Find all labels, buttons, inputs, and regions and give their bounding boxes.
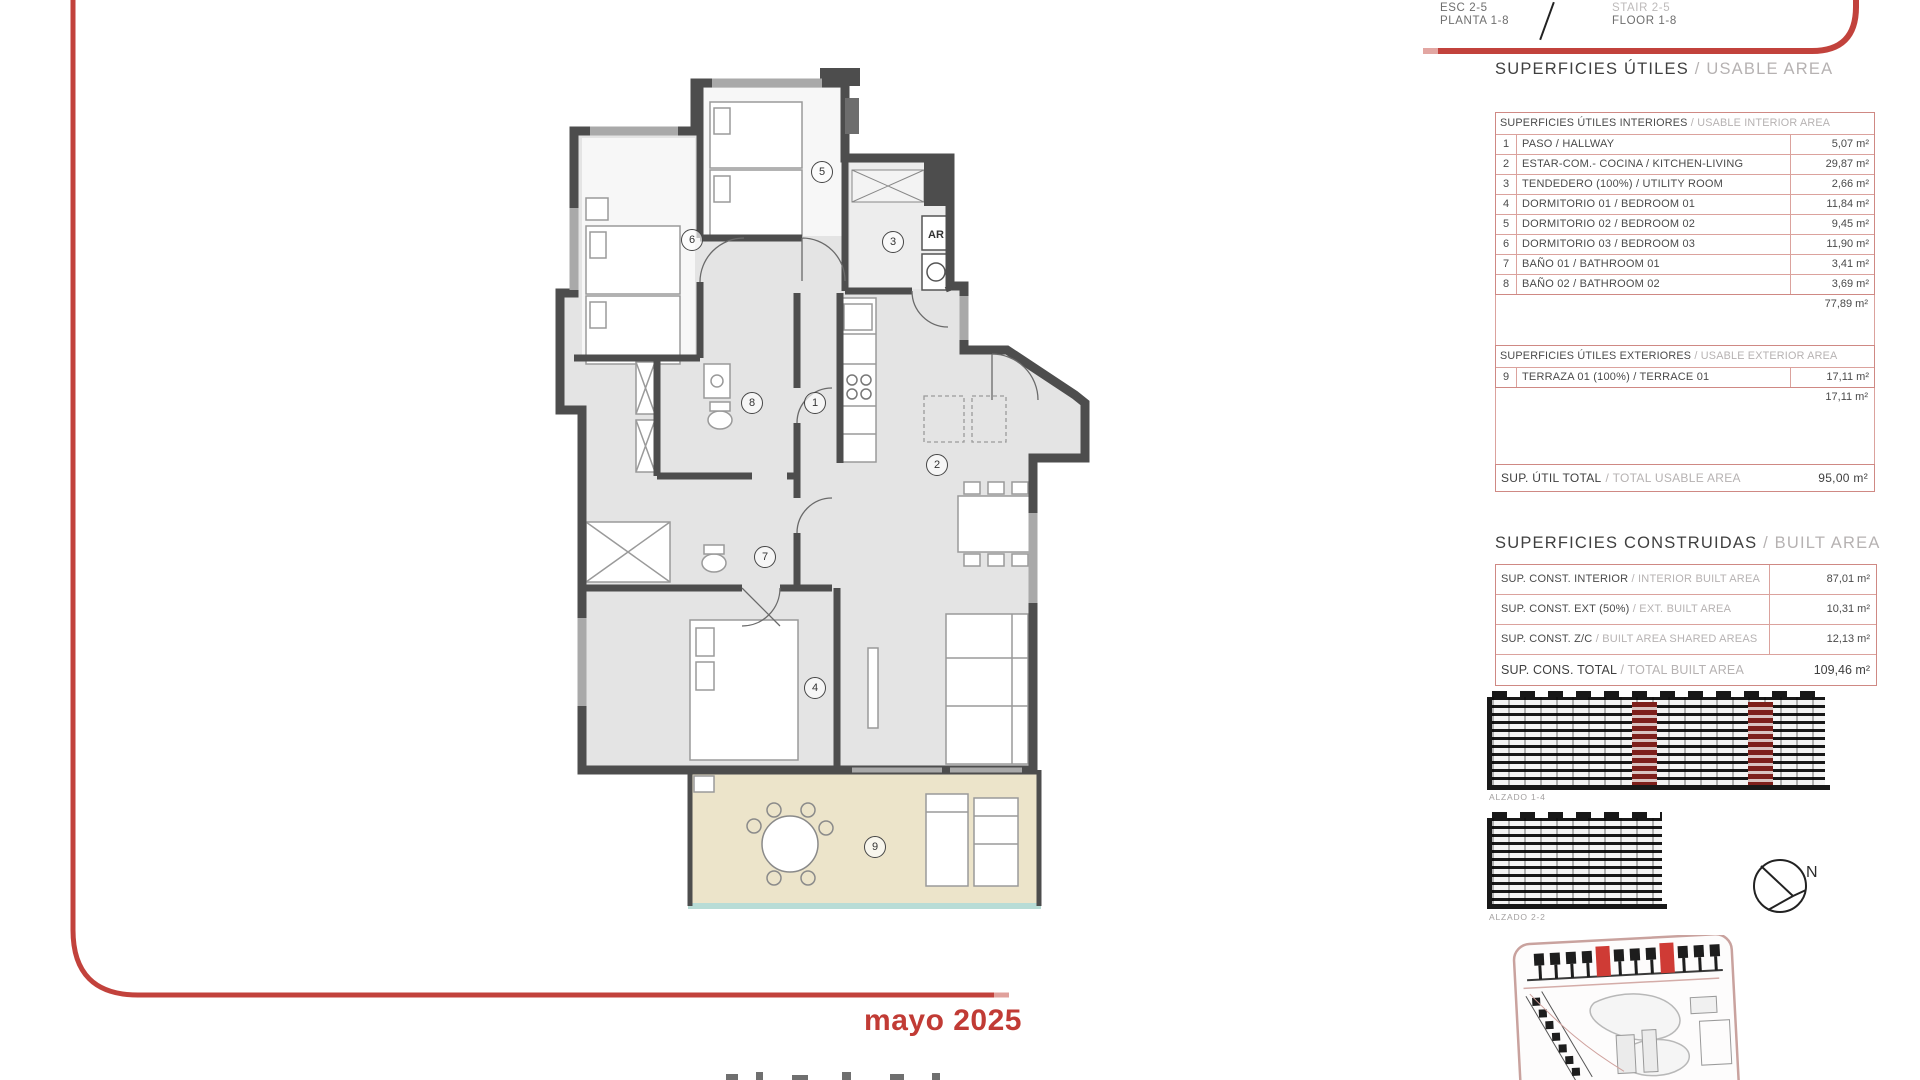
row-number: 6 — [1496, 235, 1517, 254]
built-row-label-es: SUP. CONST. Z/C — [1501, 633, 1592, 645]
interior-table-header: SUPERFICIES ÚTILES INTERIORES / USABLE I… — [1496, 113, 1874, 134]
built-row: SUP. CONST. Z/C / BUILT AREA SHARED AREA… — [1496, 624, 1876, 654]
row-value: 29,87 m² — [1790, 155, 1874, 174]
table-row: 7 BAÑO 01 / BATHROOM 01 3,41 m² — [1496, 254, 1874, 274]
usable-total-label-en: / TOTAL USABLE AREA — [1606, 471, 1741, 485]
built-row-value: 10,31 m² — [1769, 595, 1876, 624]
stair-label-en: STAIR 2-5 — [1612, 2, 1677, 15]
interior-subtotal-value: 77,89 m² — [1825, 298, 1868, 310]
row-value: 11,90 m² — [1790, 235, 1874, 254]
built-row-label-es: SUP. CONST. EXT (50%) — [1501, 603, 1630, 615]
elevation-2-drawing — [1487, 818, 1662, 904]
date-stamp: mayo 2025 — [860, 1004, 1022, 1038]
elevation-1-highlight — [1632, 702, 1657, 785]
interior-subtotal: 77,89 m² — [1495, 295, 1875, 345]
site-plan — [1502, 935, 1752, 1080]
interior-header-en: / USABLE INTERIOR AREA — [1691, 117, 1830, 129]
elevation-1-label: ALZADO 1-4 — [1489, 792, 1546, 802]
row-number: 5 — [1496, 215, 1517, 234]
row-value: 3,69 m² — [1790, 275, 1874, 294]
site-plan-unit-highlight-2 — [1659, 943, 1675, 974]
interior-table: SUPERFICIES ÚTILES INTERIORES / USABLE I… — [1495, 112, 1875, 295]
row-number: 7 — [1496, 255, 1517, 274]
table-row: 1 PASO / HALLWAY 5,07 m² — [1496, 134, 1874, 154]
built-row-value: 87,01 m² — [1769, 565, 1876, 594]
shaft-block-2 — [924, 158, 950, 206]
table-row: 5 DORMITORIO 02 / BEDROOM 02 9,45 m² — [1496, 214, 1874, 234]
built-title-en: / BUILT AREA — [1763, 534, 1880, 552]
exterior-header-es: SUPERFICIES ÚTILES EXTERIORES — [1500, 350, 1691, 362]
row-number: 4 — [1496, 195, 1517, 214]
plan-header: ESC 2-5 PLANTA 1-8 — [1440, 2, 1780, 48]
bottom-cutoff-marks — [722, 1071, 962, 1080]
built-total-value: 109,46 m² — [1770, 655, 1876, 685]
row-name: DORMITORIO 01 / BEDROOM 01 — [1517, 195, 1790, 214]
pillar-block — [845, 98, 859, 134]
row-name: DORMITORIO 02 / BEDROOM 02 — [1517, 215, 1790, 234]
row-name: TERRAZA 01 (100%) / TERRACE 01 — [1517, 368, 1790, 387]
exterior-header-en: / USABLE EXTERIOR AREA — [1694, 350, 1837, 362]
exterior-table: SUPERFICIES ÚTILES EXTERIORES / USABLE E… — [1495, 345, 1875, 388]
room-circle-6: 6 — [681, 229, 703, 251]
usable-total-label-es: SUP. ÚTIL TOTAL — [1501, 471, 1602, 485]
room-circle-1: 1 — [804, 392, 826, 414]
row-number: 9 — [1496, 368, 1517, 387]
ar-appliance-label: AR — [928, 229, 944, 241]
usable-total-value: 95,00 m² — [1818, 471, 1868, 485]
exterior-table-header: SUPERFICIES ÚTILES EXTERIORES / USABLE E… — [1496, 346, 1874, 367]
table-row: 9 TERRAZA 01 (100%) / TERRACE 01 17,11 m… — [1496, 367, 1874, 387]
north-arrow-icon — [1748, 852, 1828, 922]
row-name: ESTAR-COM.- COCINA / KITCHEN-LIVING — [1517, 155, 1790, 174]
site-plan-unit-highlight — [1595, 946, 1611, 977]
row-value: 17,11 m² — [1790, 368, 1874, 387]
usable-title-es: SUPERFICIES ÚTILES — [1495, 60, 1689, 78]
room-circle-9: 9 — [864, 836, 886, 858]
usable-total-row: SUP. ÚTIL TOTAL / TOTAL USABLE AREA 95,0… — [1495, 464, 1875, 492]
built-row-label-en: / BUILT AREA SHARED AREAS — [1596, 633, 1758, 645]
row-number: 2 — [1496, 155, 1517, 174]
row-name: DORMITORIO 03 / BEDROOM 03 — [1517, 235, 1790, 254]
room-circle-4: 4 — [804, 677, 826, 699]
built-row-value: 12,13 m² — [1769, 625, 1876, 654]
row-number: 3 — [1496, 175, 1517, 194]
elevation-2-label: ALZADO 2-2 — [1489, 912, 1546, 922]
row-name: BAÑO 02 / BATHROOM 02 — [1517, 275, 1790, 294]
utility-window — [852, 170, 924, 202]
usable-area-title: SUPERFICIES ÚTILES / USABLE AREA — [1495, 60, 1833, 79]
floor-plan-drawing: AR — [552, 58, 1097, 918]
row-value: 9,45 m² — [1790, 215, 1874, 234]
row-name: PASO / HALLWAY — [1517, 135, 1790, 154]
floor-label-es: PLANTA 1-8 — [1440, 15, 1780, 28]
stair-label-es: ESC 2-5 — [1440, 2, 1780, 15]
room-circle-2: 2 — [926, 454, 948, 476]
built-row-label-es: SUP. CONST. INTERIOR — [1501, 573, 1628, 585]
built-total-label-es: SUP. CONS. TOTAL — [1501, 663, 1617, 677]
table-row: 8 BAÑO 02 / BATHROOM 02 3,69 m² — [1496, 274, 1874, 294]
built-title-es: SUPERFICIES CONSTRUIDAS — [1495, 534, 1757, 552]
usable-title-en: / USABLE AREA — [1695, 60, 1834, 78]
row-number: 1 — [1496, 135, 1517, 154]
table-row: 2 ESTAR-COM.- COCINA / KITCHEN-LIVING 29… — [1496, 154, 1874, 174]
interior-header-es: SUPERFICIES ÚTILES INTERIORES — [1500, 117, 1688, 129]
table-row: 3 TENDEDERO (100%) / UTILITY ROOM 2,66 m… — [1496, 174, 1874, 194]
floor-plan: AR 1 2 — [552, 58, 1097, 918]
built-row-label-en: / EXT. BUILT AREA — [1633, 603, 1731, 615]
terrace-balustrade — [688, 903, 1041, 909]
exterior-subtotal: 17,11 m² — [1495, 388, 1875, 464]
room-circle-5: 5 — [811, 161, 833, 183]
elevation-1-drawing — [1487, 697, 1825, 785]
elevation-1-highlight-2 — [1748, 702, 1773, 785]
built-row-label-en: / INTERIOR BUILT AREA — [1632, 573, 1761, 585]
north-label: N — [1806, 864, 1818, 882]
row-number: 8 — [1496, 275, 1517, 294]
built-row: SUP. CONST. EXT (50%) / EXT. BUILT AREA … — [1496, 594, 1876, 624]
built-total-row: SUP. CONS. TOTAL / TOTAL BUILT AREA 109,… — [1496, 654, 1876, 685]
row-value: 2,66 m² — [1790, 175, 1874, 194]
built-area-table: SUP. CONST. INTERIOR / INTERIOR BUILT AR… — [1495, 564, 1877, 686]
built-total-label-en: / TOTAL BUILT AREA — [1620, 663, 1744, 677]
shaft-block — [820, 68, 860, 86]
room-circle-3: 3 — [882, 231, 904, 253]
exterior-subtotal-value: 17,11 m² — [1825, 391, 1868, 403]
room-circle-8: 8 — [741, 392, 763, 414]
row-name: BAÑO 01 / BATHROOM 01 — [1517, 255, 1790, 274]
table-row: 6 DORMITORIO 03 / BEDROOM 03 11,90 m² — [1496, 234, 1874, 254]
room-circle-7: 7 — [754, 546, 776, 568]
row-value: 11,84 m² — [1790, 195, 1874, 214]
built-area-title: SUPERFICIES CONSTRUIDAS / BUILT AREA — [1495, 534, 1881, 553]
row-name: TENDEDERO (100%) / UTILITY ROOM — [1517, 175, 1790, 194]
plan-header-en: STAIR 2-5 FLOOR 1-8 — [1612, 2, 1677, 28]
usable-area-tables: SUPERFICIES ÚTILES INTERIORES / USABLE I… — [1495, 112, 1875, 492]
built-row: SUP. CONST. INTERIOR / INTERIOR BUILT AR… — [1496, 565, 1876, 594]
row-value: 3,41 m² — [1790, 255, 1874, 274]
floor-label-en: FLOOR 1-8 — [1612, 15, 1677, 28]
table-row: 4 DORMITORIO 01 / BEDROOM 01 11,84 m² — [1496, 194, 1874, 214]
row-value: 5,07 m² — [1790, 135, 1874, 154]
